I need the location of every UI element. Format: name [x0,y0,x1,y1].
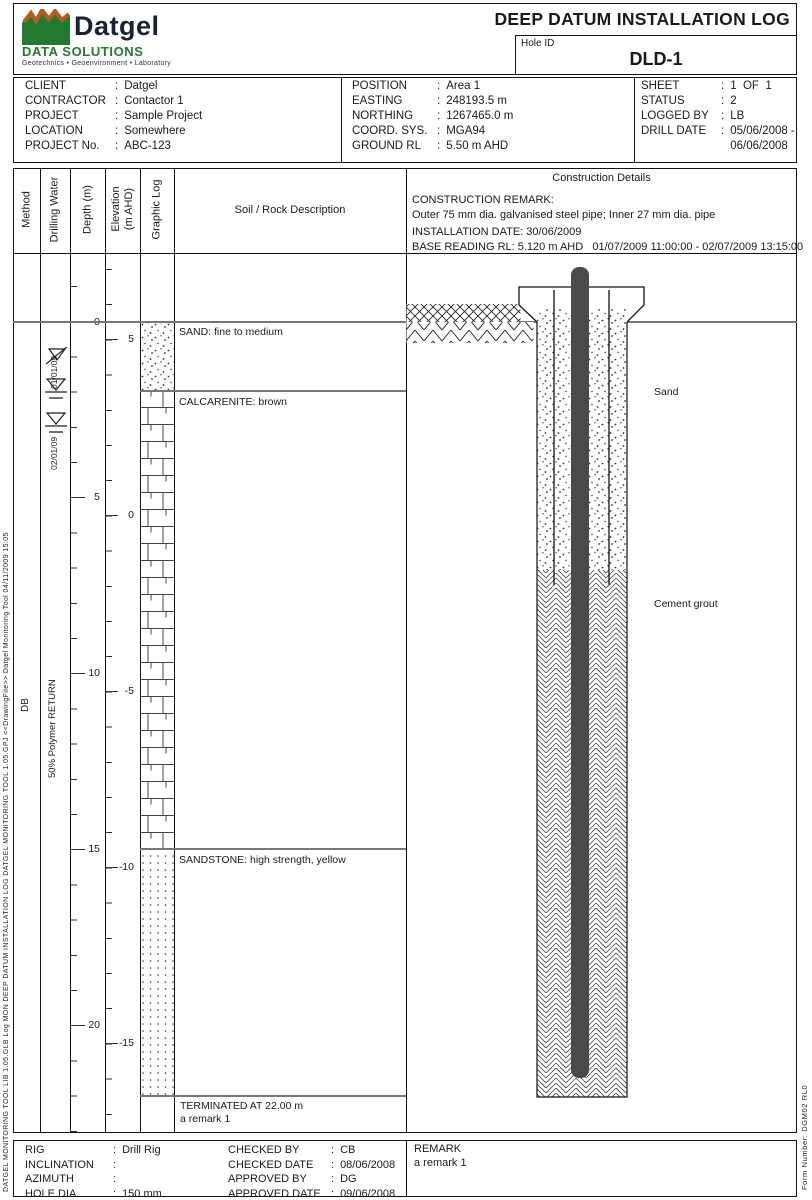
info-row-contractor: CONTRACTOR:Contactor 1 [25,94,202,109]
logo-wordmark: Datgel [74,11,160,42]
footer-row-checked-by: CHECKED BY:CB [228,1143,395,1158]
col-header-method: Method [20,167,33,253]
project-info-col1: CLIENT:Datgel CONTRACTOR:Contactor 1 PRO… [25,79,202,154]
col-header-graphic-log: Graphic Log [151,167,164,253]
info-row-easting: EASTING:248193.5 m [352,94,513,109]
construction-remark-title: CONSTRUCTION REMARK: [412,194,554,206]
footer-row-rig: RIG:Drill Rig [25,1143,162,1158]
depth-label-20: 20 [72,1019,100,1031]
installation-date-text: INSTALLATION DATE: 30/06/2009 [412,226,581,238]
col-header-elevation: Elevation (m AHD) [110,166,136,252]
col-divider-method [40,168,41,1133]
info-row-project-no: PROJECT No.:ABC-123 [25,139,202,154]
footer-remark-value: a remark 1 [414,1157,467,1169]
info-row-project: PROJECT:Sample Project [25,109,202,124]
elevation-label-m5: -5 [106,685,134,697]
method-code-text: DB [20,682,31,712]
water-level-icon [44,377,68,403]
termination-text-line2: a remark 1 [180,1113,230,1126]
footer-col1: RIG:Drill Rig INCLINATION: AZIMUTH: HOLE… [25,1143,162,1200]
base-reading-text: BASE READING RL: 5.120 m AHD 01/07/2009 … [412,241,803,253]
hole-id-label: Hole ID [521,38,554,49]
hole-id-value: DLD-1 [515,49,797,70]
footer-divider [406,1140,407,1197]
footer-row-azimuth: AZIMUTH: [25,1172,162,1187]
depth-minor-ticks [70,286,77,1132]
strata-boundary-1 [140,390,406,392]
termination-line [140,1095,406,1097]
info-row-ground-rl: GROUND RL:5.50 m AHD [352,139,513,154]
page-title: DEEP DATUM INSTALLATION LOG [300,9,790,30]
elevation-label-0: 0 [106,509,134,521]
col-divider-graphic [174,168,175,1133]
info-row-position: POSITION:Area 1 [352,79,513,94]
stratum-description-sand: SAND: fine to medium [179,326,283,339]
datgel-logo-icon [22,9,70,45]
ground-hatch-upper [407,304,521,322]
water-return-text: 50% Polymer RETURN [47,618,58,778]
depth-label-15: 15 [72,843,100,855]
logo-tagline: Geotechnics • Geoenvironment • Laborator… [22,60,171,67]
info-row-drill-date-2: :06/06/2008 [641,139,795,154]
graphic-log-column [141,322,174,1096]
info-row-location: LOCATION:Somewhere [25,124,202,139]
info-row-sheet: SHEET:1 OF 1 [641,79,795,94]
info-divider-1 [341,77,342,163]
construction-diagram [406,253,797,1133]
stratum-description-calcarenite: CALCARENITE: brown [179,396,287,409]
construction-remark-text: Outer 75 mm dia. galvanised steel pipe; … [412,209,715,221]
stratum-description-sandstone: SANDSTONE: high strength, yellow [179,854,346,867]
deep-datum-installation-log-sheet: DATGEL MONITORING TOOL LIB 1.05.GLB Log … [0,0,812,1200]
elevation-label-m10: -10 [106,861,134,873]
footer-row-approved-date: APPROVED DATE:09/06/2008 [228,1187,395,1200]
logo-subtitle: DATA SOLUTIONS [22,44,144,59]
water-level-date-2: 02/01/09 [49,430,59,470]
construction-label-sand: Sand [654,386,679,398]
depth-label-10: 10 [72,667,100,679]
info-row-client: CLIENT:Datgel [25,79,202,94]
info-divider-2 [634,77,635,163]
elevation-label-5: 5 [106,333,134,345]
termination-text-line1: TERMINATED AT 22.00 m [180,1100,303,1113]
footer-row-checked-date: CHECKED DATE:08/06/2008 [228,1158,395,1173]
left-margin-system-text: DATGEL MONITORING TOOL LIB 1.05.GLB Log … [3,334,10,1192]
project-info-col3: SHEET:1 OF 1 STATUS:2 LOGGED BY:LB DRILL… [641,79,795,154]
ground-hatch-lower [407,322,534,343]
elevation-label-m15: -15 [106,1037,134,1049]
strata-boundary-2 [140,848,406,850]
info-row-coord-sys: COORD. SYS.:MGA94 [352,124,513,139]
construction-label-cement-grout: Cement grout [654,598,718,610]
datum-pipe [571,267,589,1078]
col-header-description: Soil / Rock Description [174,204,406,216]
info-row-logged-by: LOGGED BY:LB [641,109,795,124]
col-header-drilling-water: Drilling Water [49,167,62,253]
depth-label-5: 5 [72,491,100,503]
form-number-text: Form Number: DGM02 RL0 [800,1000,809,1190]
footer-col2: CHECKED BY:CB CHECKED DATE:08/06/2008 AP… [228,1143,395,1200]
footer-row-hole-dia: HOLE DIA.:150 mm [25,1187,162,1200]
col-header-construction: Construction Details [406,172,797,184]
col-header-depth: Depth (m) [81,167,94,253]
footer-row-inclination: INCLINATION: [25,1158,162,1173]
info-row-drill-date: DRILL DATE:05/06/2008 - [641,124,795,139]
info-row-northing: NORTHING:1267465.0 m [352,109,513,124]
footer-row-approved-by: APPROVED BY:DG [228,1172,395,1187]
info-row-status: STATUS:2 [641,94,795,109]
footer-remark-label: REMARK [414,1143,461,1155]
project-info-col2: POSITION:Area 1 EASTING:248193.5 m NORTH… [352,79,513,154]
